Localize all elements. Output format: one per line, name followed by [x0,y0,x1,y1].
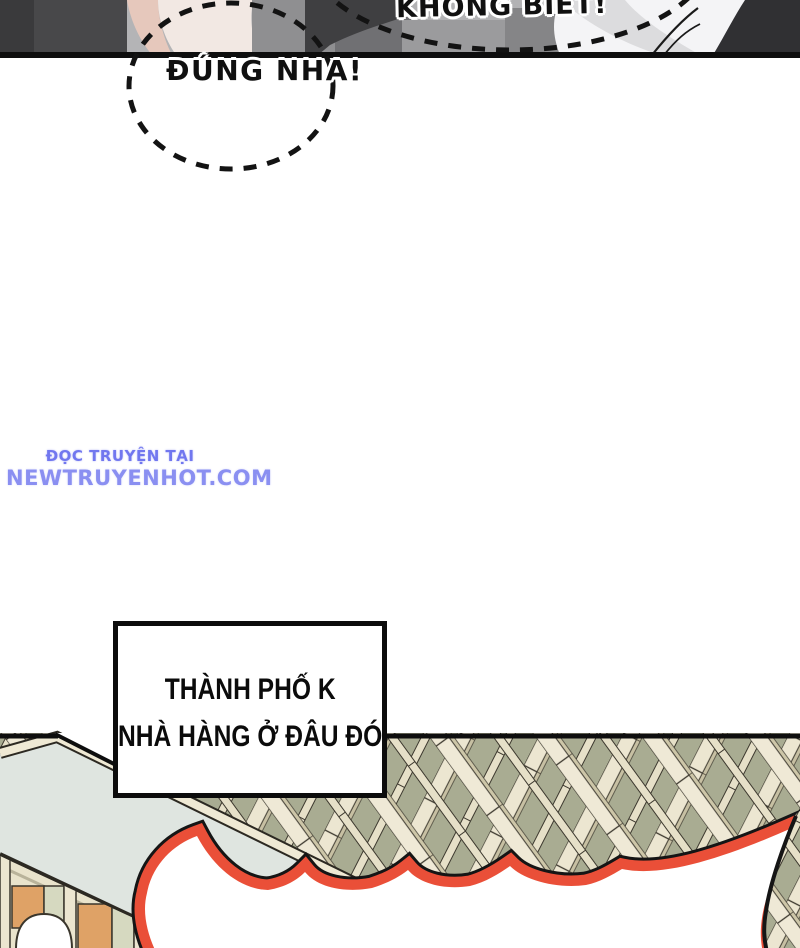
site-watermark: ĐỌC TRUYỆN TẠI NEWTRUYENHOT.COM [6,448,234,490]
watermark-sitename: NEWTRUYENHOT.COM [6,467,234,490]
comic-page: KHÔNG BIẾT! ĐÚNG NHA! ĐỌC TRUYỆN TẠI NEW… [0,0,800,948]
top-art-band [0,0,800,169]
caption-line-1: THÀNH PHỐ K [165,667,336,714]
speech-text-dung-nha: ĐÚNG NHA! [166,54,363,87]
location-caption-box: THÀNH PHỐ K NHÀ HÀNG Ở ĐÂU ĐÓ [113,621,387,798]
caption-line-2: NHÀ HÀNG Ở ĐÂU ĐÓ [118,714,382,761]
watermark-tagline: ĐỌC TRUYỆN TẠI [6,448,234,465]
top-panel-border [0,52,800,58]
